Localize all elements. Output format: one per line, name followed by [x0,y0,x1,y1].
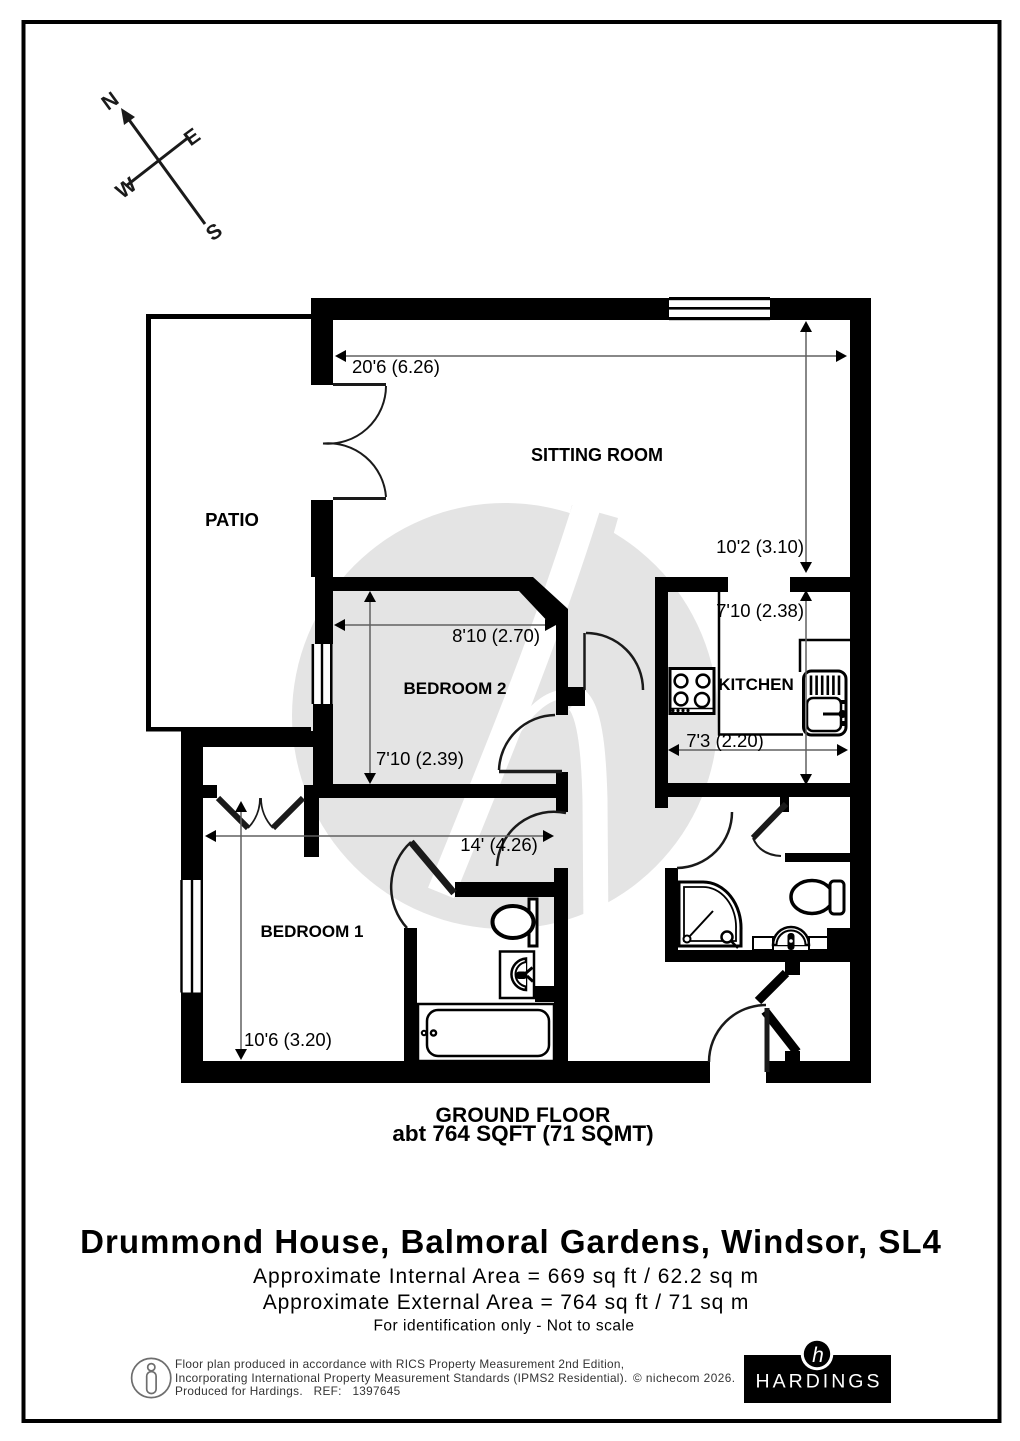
svg-text:For identification only - Not: For identification only - Not to scale [373,1318,634,1335]
svg-text:7'10 (2.39): 7'10 (2.39) [376,748,464,769]
svg-text:PATIO: PATIO [205,509,259,530]
svg-text:Floor plan produced in accorda: Floor plan produced in accordance with R… [175,1357,624,1371]
svg-text:BEDROOM 2: BEDROOM 2 [404,679,507,698]
svg-text:8'10 (2.70): 8'10 (2.70) [452,625,540,646]
svg-text:SITTING ROOM: SITTING ROOM [531,445,663,465]
svg-text:Approximate External Area = 76: Approximate External Area = 764 sq ft / … [263,1291,749,1314]
svg-text:Incorporating International Pr: Incorporating International Property Mea… [175,1371,628,1385]
svg-text:Drummond House, Balmoral Garde: Drummond House, Balmoral Gardens, Windso… [80,1223,942,1260]
svg-text:abt 764 SQFT (71 SQMT): abt 764 SQFT (71 SQMT) [392,1121,653,1146]
svg-text:10'2 (3.10): 10'2 (3.10) [716,536,804,557]
svg-text:HARDINGS: HARDINGS [756,1371,883,1393]
svg-text:KITCHEN: KITCHEN [718,675,794,694]
svg-text:h: h [812,1344,824,1367]
svg-text:© nichecom 2026.: © nichecom 2026. [633,1371,735,1385]
svg-text:BEDROOM 1: BEDROOM 1 [261,922,364,941]
svg-text:14' (4.26): 14' (4.26) [460,834,538,855]
svg-text:Approximate Internal Area = 66: Approximate Internal Area = 669 sq ft / … [253,1265,759,1288]
svg-text:Produced for Hardings. REF:: Produced for Hardings. REF: 1397645 [175,1384,401,1398]
svg-text:10'6 (3.20): 10'6 (3.20) [244,1029,332,1050]
svg-text:7'10 (2.38): 7'10 (2.38) [716,600,804,621]
svg-text:20'6 (6.26): 20'6 (6.26) [352,356,440,377]
svg-text:7'3 (2.20): 7'3 (2.20) [686,730,764,751]
